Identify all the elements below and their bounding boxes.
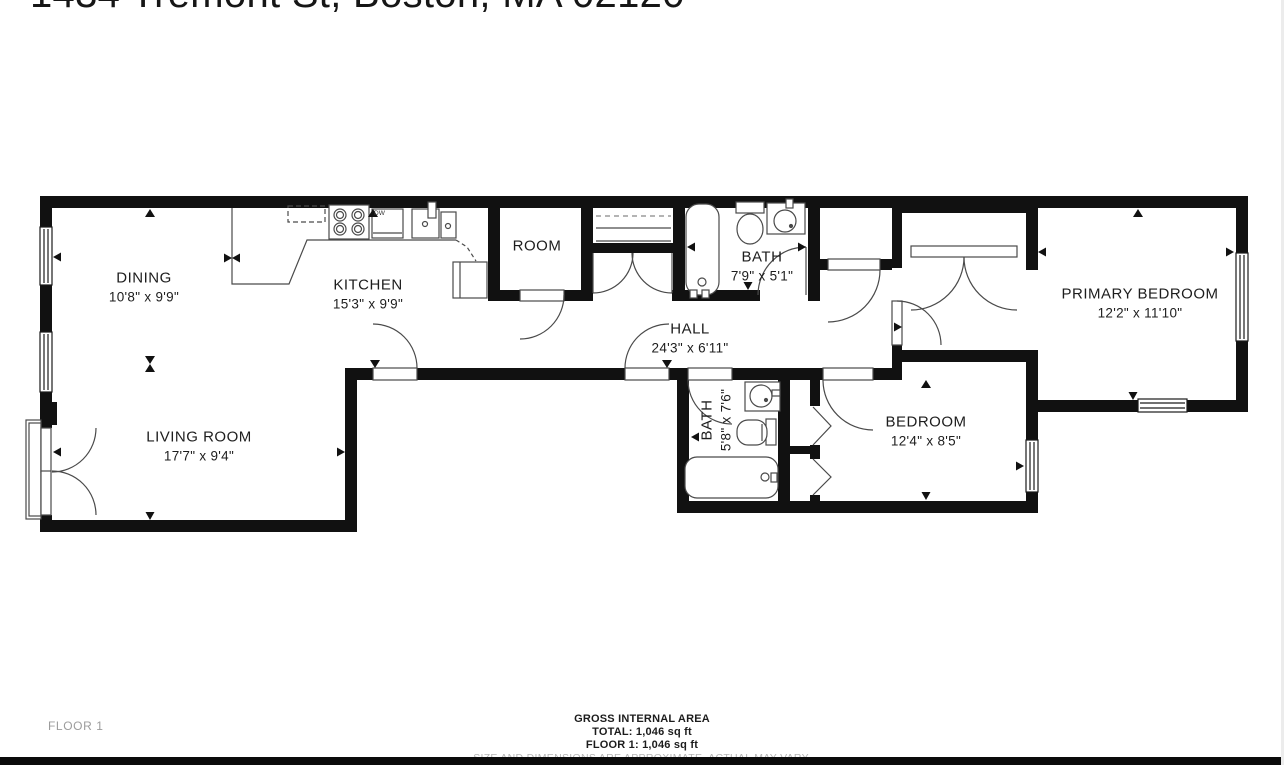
room-dims: 24'3" x 6'11" [652, 341, 729, 356]
dishwasher-label: DW [374, 210, 385, 217]
bottom-bar [0, 757, 1284, 765]
room-label-kitchen: KITCHEN 15'3" x 9'9" [333, 277, 403, 312]
room-dims: 5'8" x 7'6" [719, 389, 734, 451]
room-name: HALL [652, 321, 729, 338]
room-name: LIVING ROOM [146, 429, 252, 446]
room-label-bath-upper: BATH 7'9" x 5'1" [731, 249, 793, 284]
room-label-hall: HALL 24'3" x 6'11" [652, 321, 729, 356]
total-area: TOTAL: 1,046 sq ft [473, 726, 811, 739]
room-dims: 17'7" x 9'4" [146, 449, 252, 464]
room-label-bath-lower: BATH 5'8" x 7'6" [699, 389, 734, 451]
room-label-bedroom: BEDROOM 12'4" x 8'5" [885, 414, 966, 449]
room-name: KITCHEN [333, 277, 403, 294]
floorplan-page: 1434 Tremont St, Boston, MA 02120 [0, 0, 1284, 765]
walls [40, 196, 1248, 532]
room-dims: 10'8" x 9'9" [109, 290, 179, 305]
room-dims: 7'9" x 5'1" [731, 269, 793, 284]
floorplan-drawing [0, 0, 1284, 765]
room-name: BEDROOM [885, 414, 966, 431]
room-name: PRIMARY BEDROOM [1062, 286, 1219, 303]
gross-internal-area-title: GROSS INTERNAL AREA [473, 713, 811, 726]
dimension-ticks [53, 209, 1234, 520]
floor1-area: FLOOR 1: 1,046 sq ft [473, 739, 811, 752]
room-name: ROOM [513, 238, 562, 255]
room-dims: 12'2" x 11'10" [1062, 306, 1219, 321]
room-label-living-room: LIVING ROOM 17'7" x 9'4" [146, 429, 252, 464]
room-name: BATH [699, 389, 716, 451]
room-name: BATH [731, 249, 793, 266]
room-label-primary-bedroom: PRIMARY BEDROOM 12'2" x 11'10" [1062, 286, 1219, 321]
room-label-dining: DINING 10'8" x 9'9" [109, 270, 179, 305]
room-dims: 12'4" x 8'5" [885, 434, 966, 449]
room-label-room: ROOM [513, 238, 562, 255]
floor-tag: FLOOR 1 [48, 719, 104, 733]
room-name: DINING [109, 270, 179, 287]
room-dims: 15'3" x 9'9" [333, 297, 403, 312]
